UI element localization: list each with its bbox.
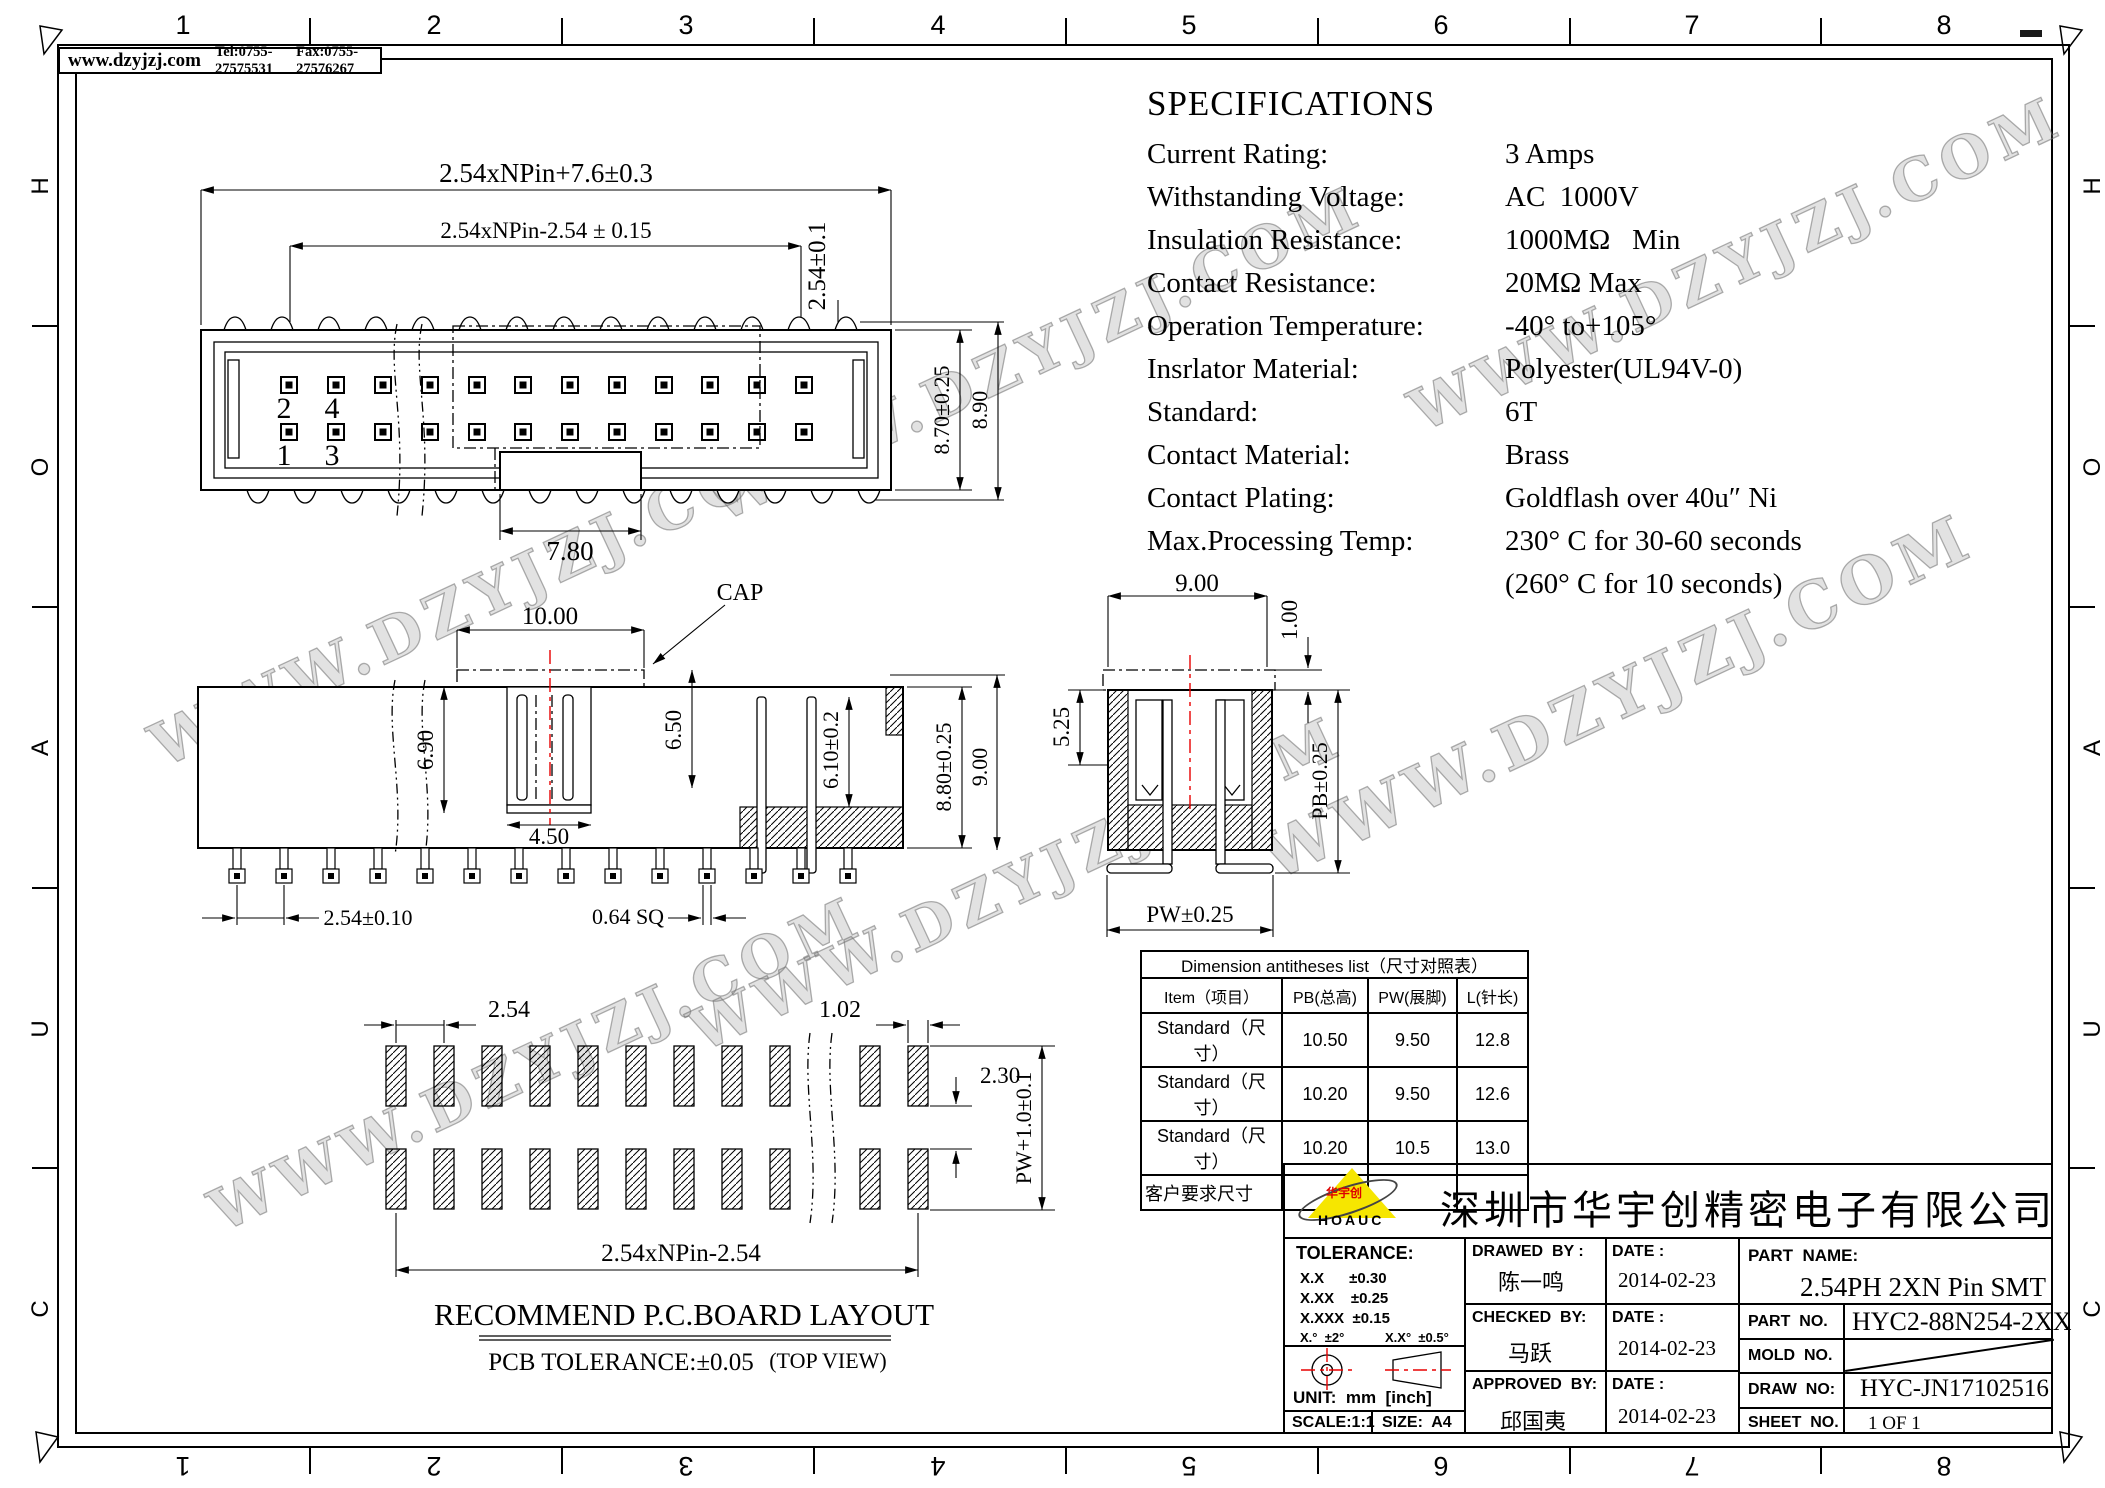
pcb-dims: 2.54 1.02 2.30 PW+1.0±0.1 2.54xNPin-2.54 xyxy=(364,997,1055,1277)
view-pcb-layout: 2.54 1.02 2.30 PW+1.0±0.1 2.54xNPin-2.54… xyxy=(280,995,1130,1395)
top-view-dim-bottom: 7.80 xyxy=(500,494,641,566)
cap-outline xyxy=(1103,670,1275,690)
zone-letter: H xyxy=(2079,171,2105,201)
zone-letter: H xyxy=(27,171,55,201)
svg-text:10.00: 10.00 xyxy=(522,603,578,630)
tolerance-angle: X.X° ±0.5° xyxy=(1385,1330,1449,1345)
svg-text:PW±0.25: PW±0.25 xyxy=(1146,902,1233,927)
svg-text:2.54±0.10: 2.54±0.10 xyxy=(323,905,412,930)
svg-text:5.25: 5.25 xyxy=(1049,707,1074,747)
contact-slot xyxy=(1136,700,1162,800)
spec-row: Current Rating:3 Amps xyxy=(1147,138,1802,181)
pick-tab xyxy=(500,452,641,490)
zone-number: 8 xyxy=(1924,1450,1964,1481)
tolerance-row: X.XXX ±0.15 xyxy=(1300,1310,1390,1327)
base-hatch xyxy=(1128,805,1252,850)
print-mark xyxy=(2020,30,2042,37)
svg-text:1.02: 1.02 xyxy=(819,997,861,1023)
break-line xyxy=(808,1033,813,1223)
zone-letter: A xyxy=(27,733,55,763)
spec-row: Insrlator Material:Polyester(UL94V-0) xyxy=(1147,353,1802,396)
zone-letter: U xyxy=(27,1014,55,1044)
pcb-view-note: (TOP VIEW) xyxy=(769,1348,887,1373)
foot-right xyxy=(1216,864,1273,873)
zone-number: 6 xyxy=(1421,1450,1461,1481)
dimension-table-title: Dimension antitheses list（尺寸对照表） xyxy=(1141,951,1528,978)
pin-number: 4 xyxy=(325,392,340,425)
spec-row: Standard:6T xyxy=(1147,396,1802,439)
pcb-captions: RECOMMEND P.C.BOARD LAYOUT PCB TOLERANCE… xyxy=(434,1297,934,1376)
part-name-value: 2.54PH 2XN Pin SMT xyxy=(1800,1272,2046,1303)
svg-text:9.00: 9.00 xyxy=(1175,570,1219,597)
smt-leads-top xyxy=(224,317,857,330)
contact-pin xyxy=(807,697,816,873)
pcb-title: RECOMMEND P.C.BOARD LAYOUT xyxy=(434,1297,934,1332)
tel-label: Tel:0755-27575531 xyxy=(215,44,284,78)
view-side: CAP 10.00 xyxy=(190,580,1000,940)
svg-text:8.90: 8.90 xyxy=(967,391,992,430)
zone-number: 8 xyxy=(1924,10,1964,41)
zone-letter: O xyxy=(27,452,55,482)
sheet-no-value: 1 OF 1 xyxy=(1868,1413,1921,1435)
smt-leads-bottom xyxy=(247,490,880,503)
part-no-value: HYC2-88N254-2XX xyxy=(1852,1307,2072,1337)
svg-text:1.00: 1.00 xyxy=(1277,600,1302,640)
svg-text:PW+1.0±0.1: PW+1.0±0.1 xyxy=(1011,1072,1036,1184)
spec-row: Max.Processing Temp:230° C for 30-60 sec… xyxy=(1147,525,1802,568)
spec-row: Contact Plating:Goldflash over 40u″ Ni xyxy=(1147,482,1802,525)
drawed-by-label: DRAWED BY : xyxy=(1472,1243,1584,1261)
view-top: 2.54xNPin+7.6±0.3 2.54xNPin-2.54 ± 0.15 … xyxy=(160,160,1020,580)
logo-text: HOAUC xyxy=(1318,1212,1384,1228)
svg-text:8.70±0.25: 8.70±0.25 xyxy=(929,365,954,454)
spec-row: Operation Temperature:-40° to+105° xyxy=(1147,310,1802,353)
approved-by-label: APPROVED BY: xyxy=(1472,1376,1597,1394)
svg-text:9.00: 9.00 xyxy=(967,748,992,787)
draw-no-label: DRAW NO: xyxy=(1748,1381,1835,1399)
wall-hatch xyxy=(1108,690,1128,850)
tolerance-title: TOLERANCE: xyxy=(1296,1243,1414,1264)
svg-text:2.54xNPin-2.54: 2.54xNPin-2.54 xyxy=(601,1240,761,1267)
tolerance-row: X.X ±0.30 xyxy=(1300,1270,1387,1287)
website-link[interactable]: www.dzyjzj.com xyxy=(68,50,201,72)
sheet-no-label: SHEET NO. xyxy=(1748,1414,1839,1432)
zone-number: 4 xyxy=(918,10,958,41)
date-label: DATE : xyxy=(1612,1376,1664,1394)
section-hatch xyxy=(886,687,903,735)
table-row: Standard（尺寸） 10.50 9.50 12.8 xyxy=(1141,1013,1528,1067)
logo-cn-text: 华宇创 xyxy=(1326,1184,1362,1201)
unit-label: UNIT: mm [inch] xyxy=(1293,1388,1432,1408)
zone-number: 1 xyxy=(163,10,203,41)
zone-number: 1 xyxy=(163,1450,203,1481)
spec-row: Insulation Resistance:1000MΩ Min xyxy=(1147,224,1802,267)
date-value: 2014-02-23 xyxy=(1618,1336,1716,1361)
drawed-by-name: 陈一鸣 xyxy=(1498,1265,1564,1297)
date-label: DATE : xyxy=(1612,1309,1664,1327)
part-name-label: PART NAME: xyxy=(1748,1246,1858,1266)
svg-text:CAP: CAP xyxy=(717,580,764,606)
specifications-block: SPECIFICATIONS Current Rating:3 Amps Wit… xyxy=(1147,84,1802,611)
size-label: SIZE: A4 xyxy=(1382,1414,1452,1432)
svg-text:2.54±0.1: 2.54±0.1 xyxy=(804,222,831,311)
zone-letter: A xyxy=(2079,733,2105,763)
contact-header: www.dzyjzj.com Tel:0755-27575531 Fax:075… xyxy=(58,47,382,74)
col-header: L(针长) xyxy=(1457,978,1528,1013)
foot-left xyxy=(1107,864,1172,873)
zone-letter: C xyxy=(2079,1294,2105,1324)
tolerance-row: X.XX ±0.25 xyxy=(1300,1290,1388,1307)
specifications-title: SPECIFICATIONS xyxy=(1147,84,1802,124)
svg-text:2.54xNPin-2.54 ± 0.15: 2.54xNPin-2.54 ± 0.15 xyxy=(440,218,651,243)
zone-number: 7 xyxy=(1672,1450,1712,1481)
spec-row: Contact Resistance:20MΩ Max xyxy=(1147,267,1802,310)
svg-text:8.80±0.25: 8.80±0.25 xyxy=(931,722,956,811)
zone-number: 5 xyxy=(1169,1450,1209,1481)
zone-number: 3 xyxy=(666,10,706,41)
view-end: 9.00 1.00 xyxy=(1050,575,1380,970)
draw-no-value: HYC-JN17102516 xyxy=(1860,1375,2049,1403)
svg-text:2.54: 2.54 xyxy=(488,997,530,1023)
col-header: PB(总高) xyxy=(1282,978,1368,1013)
tolerance-angle: X.° ±2° xyxy=(1300,1330,1344,1345)
zone-number: 5 xyxy=(1169,10,1209,41)
pcb-tolerance: PCB TOLERANCE:±0.05 xyxy=(488,1349,754,1376)
connector-top-body: 2 4 1 3 xyxy=(201,317,891,516)
engineering-drawing-sheet: 1 2 3 4 5 6 7 8 1 2 3 4 5 6 7 8 H O A xyxy=(0,0,2105,1488)
part-no-label: PART NO. xyxy=(1748,1313,1828,1331)
lead-left xyxy=(1163,700,1172,864)
mold-no-label: MOLD NO. xyxy=(1748,1347,1832,1365)
wall-hatch xyxy=(1252,690,1272,850)
pin-number: 2 xyxy=(277,392,292,425)
scale-label: SCALE:1:1 xyxy=(1292,1414,1375,1432)
company-name: 深圳市华宇创精密电子有限公司 xyxy=(1440,1178,2056,1236)
pin-number: 3 xyxy=(325,439,340,472)
svg-text:0.64 SQ: 0.64 SQ xyxy=(592,904,664,929)
checked-by-name: 马跃 xyxy=(1508,1336,1552,1368)
svg-text:6.10±0.2: 6.10±0.2 xyxy=(818,711,843,789)
pin-number: 1 xyxy=(277,439,292,472)
center-key-block xyxy=(507,687,591,813)
zone-letter: O xyxy=(2079,452,2105,482)
zone-number: 6 xyxy=(1421,10,1461,41)
svg-text:4.50: 4.50 xyxy=(529,824,569,849)
table-row: Standard（尺寸） 10.20 10.5 13.0 xyxy=(1141,1121,1528,1175)
svg-text:6.50: 6.50 xyxy=(661,710,686,750)
approved-by-name: 邱国夷 xyxy=(1500,1404,1566,1436)
svg-text:2.54xNPin+7.6±0.3: 2.54xNPin+7.6±0.3 xyxy=(439,158,653,188)
zone-number: 2 xyxy=(414,1450,454,1481)
checked-by-label: CHECKED BY: xyxy=(1472,1309,1586,1327)
svg-text:6.90: 6.90 xyxy=(413,730,438,770)
svg-text:7.80: 7.80 xyxy=(546,536,593,566)
col-header: PW(展脚) xyxy=(1368,978,1457,1013)
pad-row-top xyxy=(386,1046,928,1106)
zone-number: 4 xyxy=(918,1450,958,1481)
break-line xyxy=(830,1033,835,1223)
fax-label: Fax:0755-27576267 xyxy=(296,44,368,78)
zone-letter: U xyxy=(2079,1014,2105,1044)
zone-number: 7 xyxy=(1672,10,1712,41)
side-view-dims-top: CAP 10.00 xyxy=(457,580,763,668)
zone-letter: C xyxy=(27,1294,55,1324)
contact-pin xyxy=(757,697,766,873)
date-label: DATE : xyxy=(1612,1243,1664,1261)
table-row: Standard（尺寸） 10.20 9.50 12.6 xyxy=(1141,1067,1528,1121)
zone-number: 2 xyxy=(414,10,454,41)
svg-text:PB±0.25: PB±0.25 xyxy=(1307,742,1332,819)
spec-row: Contact Material:Brass xyxy=(1147,439,1802,482)
zone-number: 3 xyxy=(666,1450,706,1481)
date-value: 2014-02-23 xyxy=(1618,1404,1716,1429)
end-view-body xyxy=(1103,655,1275,873)
date-value: 2014-02-23 xyxy=(1618,1268,1716,1293)
col-header: Item（项目） xyxy=(1141,978,1282,1013)
lead-right xyxy=(1216,700,1225,864)
spec-row: Withstanding Voltage:AC 1000V xyxy=(1147,181,1802,224)
pad-row-bottom xyxy=(386,1149,928,1209)
